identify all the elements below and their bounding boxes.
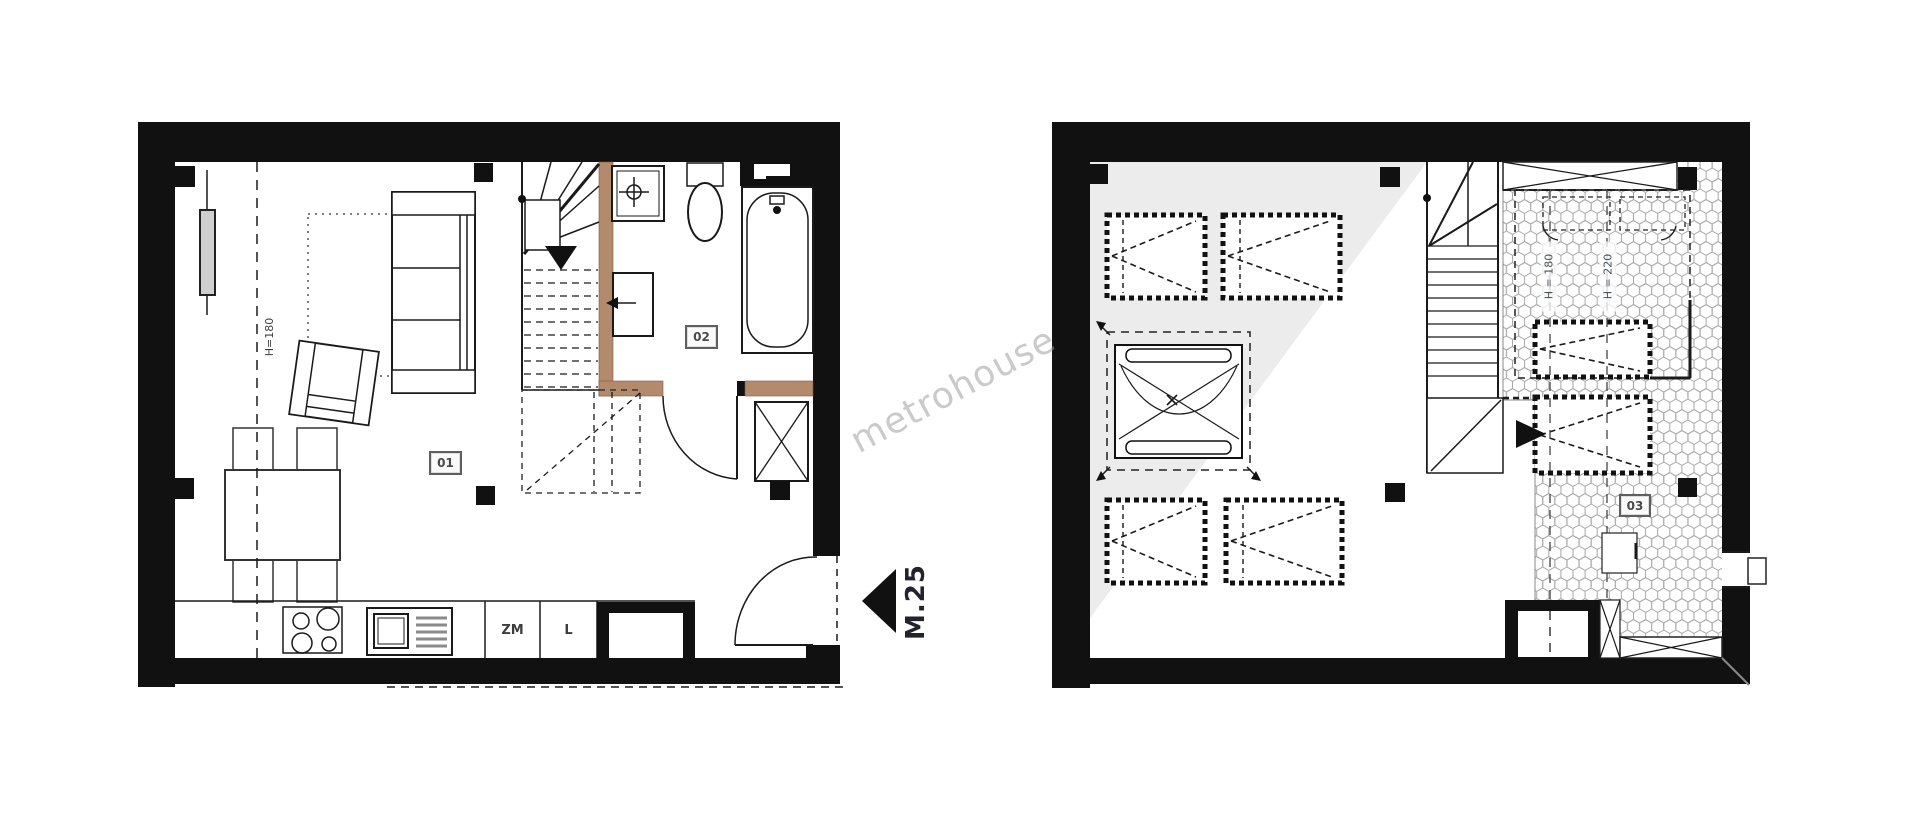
floor1-entrance-door [735, 556, 837, 648]
unit-number-label: M.25 [902, 557, 930, 647]
floor1-kitchen-counter [175, 601, 695, 659]
floor1-plan [138, 122, 896, 687]
roof-window-bottom [1620, 637, 1722, 658]
floor1-armchair [289, 341, 379, 425]
roof-window-f [1535, 397, 1650, 473]
floor2-height-180-label: H = 180 [1541, 242, 1558, 312]
floor2-plan [1052, 122, 1766, 688]
entrance-direction-arrow [862, 569, 896, 633]
roof-window-d [1226, 500, 1342, 583]
kitchen-sink [367, 608, 452, 655]
roof-window-b [1223, 215, 1340, 298]
floor1-dining-set [225, 428, 340, 602]
sofa-bed [1096, 321, 1261, 481]
fridge-appliance-black [597, 602, 695, 659]
floor2-right-wall-window [1722, 552, 1766, 587]
floor1-radiator [200, 170, 215, 315]
floor2-height-220-label: H = 220 [1600, 242, 1617, 312]
roof-window-a [1107, 215, 1205, 298]
fridge-label: L [540, 605, 597, 655]
floor2-chimney-shaft [1505, 600, 1620, 658]
roof-window-c [1107, 500, 1205, 583]
floorplan-drawing [0, 0, 1920, 834]
floor1-closet-shaft [755, 402, 808, 500]
room-label-02: 02 [685, 325, 718, 349]
room-label-01: 01 [429, 451, 462, 475]
stove-hob [283, 607, 342, 653]
floor2-shelf [1602, 533, 1637, 573]
room-label-03: 03 [1619, 494, 1651, 517]
roof-window-e [1535, 322, 1650, 377]
floorplan-canvas: 01 02 03 ZM L H=180 H = 180 H = 220 M.25… [0, 0, 1920, 834]
dishwasher-label: ZM [485, 605, 540, 655]
roof-window-top-right [1503, 162, 1677, 190]
floor1-height-label: H=180 [261, 292, 277, 382]
